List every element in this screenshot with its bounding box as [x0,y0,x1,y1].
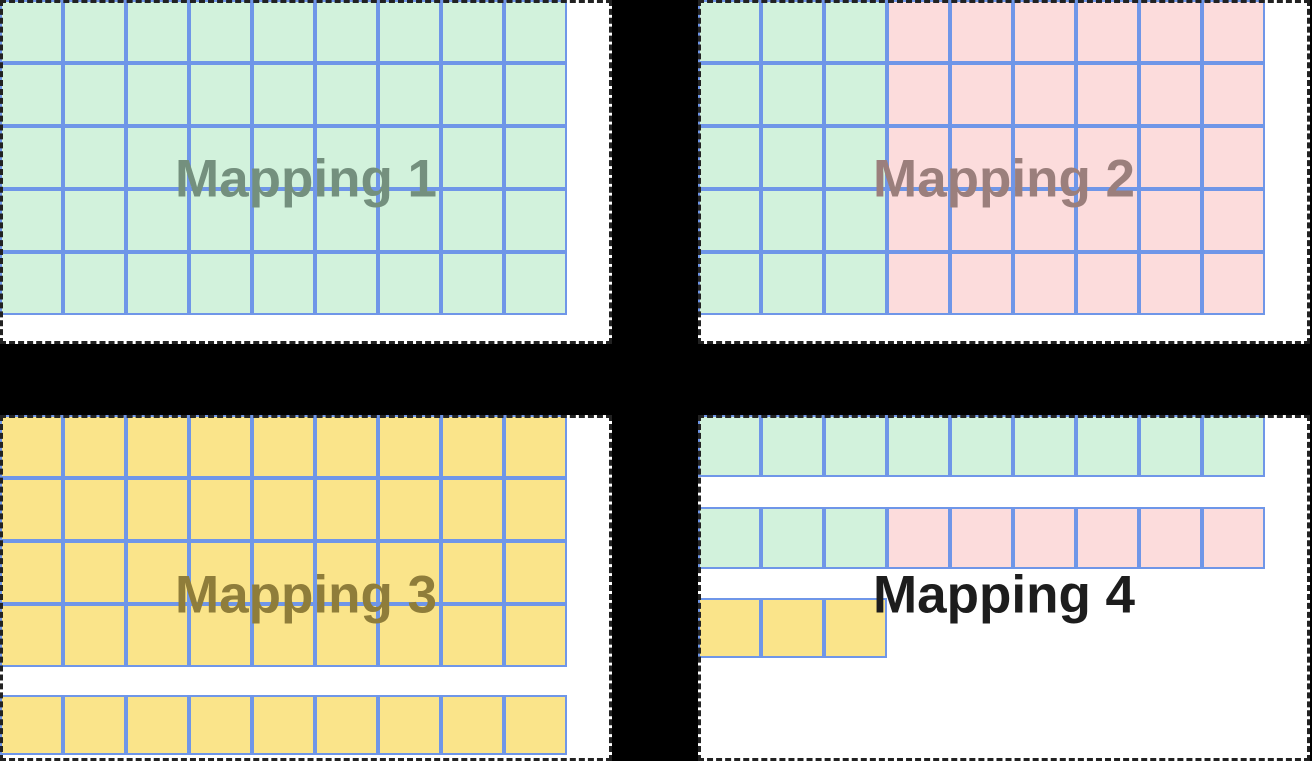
pink-cell [1076,0,1139,63]
green-cell [63,63,126,126]
pink-cell [950,0,1013,63]
pink-cell [1076,189,1139,252]
yellow-cell [315,604,378,667]
cell-row [0,604,567,667]
yellow-cell [504,478,567,541]
green-cell [315,189,378,252]
yellow-cell [504,541,567,604]
green-cell [441,0,504,63]
green-cell [698,126,761,189]
mapping-2-grid [698,0,1265,315]
green-cell [887,415,950,477]
mapping-4-grid [698,415,1265,658]
mappings-diagram: Mapping 1 Mapping 2 Mapping 3 Mapping 4 [0,0,1312,761]
pink-cell [1013,252,1076,315]
green-cell [824,415,887,477]
green-cell [441,126,504,189]
pink-cell [1076,252,1139,315]
pink-cell [1013,189,1076,252]
yellow-cell [441,695,504,755]
pink-cell [1076,63,1139,126]
pink-cell [1202,252,1265,315]
cell-row [698,598,1265,658]
yellow-cell [0,541,63,604]
green-cell [63,252,126,315]
green-cell [189,126,252,189]
pink-cell [1076,126,1139,189]
pink-cell [1202,0,1265,63]
cell-row [698,63,1265,126]
green-cell [824,63,887,126]
mapping-2-panel: Mapping 2 [698,0,1310,344]
cell-row [698,189,1265,252]
green-cell [126,63,189,126]
pink-cell [1139,189,1202,252]
cell-row [0,126,567,189]
yellow-cell [0,478,63,541]
yellow-cell [698,598,761,658]
yellow-cell [189,604,252,667]
green-cell [63,189,126,252]
pink-cell [1013,63,1076,126]
green-cell [441,189,504,252]
pink-cell [950,507,1013,569]
yellow-cell [441,541,504,604]
yellow-cell [126,604,189,667]
pink-cell [1202,126,1265,189]
cell-row-group [0,0,567,315]
green-cell [1076,415,1139,477]
cell-row-group [0,695,567,755]
yellow-cell [63,695,126,755]
green-cell [0,0,63,63]
yellow-cell [252,604,315,667]
cell-row [0,63,567,126]
green-cell [252,0,315,63]
yellow-cell [189,541,252,604]
mapping-3-grid [0,415,567,755]
green-cell [504,252,567,315]
green-cell [315,252,378,315]
yellow-cell [504,695,567,755]
green-cell [824,252,887,315]
green-cell [315,63,378,126]
pink-cell [1076,507,1139,569]
green-cell [63,0,126,63]
pink-cell [950,126,1013,189]
green-cell [126,126,189,189]
green-cell [761,252,824,315]
green-cell [315,126,378,189]
pink-cell [887,507,950,569]
green-cell [698,63,761,126]
green-cell [504,189,567,252]
mapping-1-panel: Mapping 1 [0,0,612,344]
yellow-cell [126,478,189,541]
green-cell [126,0,189,63]
green-cell [378,63,441,126]
green-cell [824,0,887,63]
green-cell [761,507,824,569]
green-cell [441,252,504,315]
cell-row-group [698,0,1265,315]
yellow-cell [315,541,378,604]
pink-cell [1013,126,1076,189]
mapping-3-panel: Mapping 3 [0,415,612,761]
yellow-cell [378,415,441,478]
green-cell [189,63,252,126]
yellow-cell [252,478,315,541]
green-cell [504,126,567,189]
yellow-cell [824,598,887,658]
yellow-cell [63,541,126,604]
green-cell [698,189,761,252]
pink-cell [1139,0,1202,63]
yellow-cell [378,478,441,541]
pink-cell [1202,63,1265,126]
green-cell [698,415,761,477]
yellow-cell [441,604,504,667]
green-cell [1139,415,1202,477]
cell-row [0,189,567,252]
green-cell [698,0,761,63]
cell-row [698,415,1265,477]
yellow-cell [0,695,63,755]
yellow-cell [378,604,441,667]
green-cell [0,252,63,315]
pink-cell [1202,189,1265,252]
yellow-cell [252,415,315,478]
green-cell [824,126,887,189]
green-cell [698,507,761,569]
pink-cell [950,252,1013,315]
yellow-cell [126,541,189,604]
green-cell [252,252,315,315]
cell-row-group [698,598,1265,658]
green-cell [504,0,567,63]
cell-row [0,541,567,604]
green-cell [761,126,824,189]
green-cell [378,0,441,63]
green-cell [1013,415,1076,477]
pink-cell [887,189,950,252]
green-cell [0,126,63,189]
green-cell [0,189,63,252]
green-cell [761,189,824,252]
green-cell [378,252,441,315]
yellow-cell [126,415,189,478]
green-cell [761,415,824,477]
green-cell [761,0,824,63]
cell-row [0,415,567,478]
yellow-cell [189,415,252,478]
cell-row-group [698,507,1265,569]
green-cell [824,189,887,252]
yellow-cell [441,478,504,541]
pink-cell [887,126,950,189]
pink-cell [1139,63,1202,126]
green-cell [252,63,315,126]
pink-cell [950,63,1013,126]
yellow-cell [315,478,378,541]
green-cell [0,63,63,126]
yellow-cell [63,604,126,667]
yellow-cell [378,695,441,755]
yellow-cell [126,695,189,755]
green-cell [950,415,1013,477]
yellow-cell [252,695,315,755]
yellow-cell [0,415,63,478]
pink-cell [1202,507,1265,569]
yellow-cell [504,604,567,667]
cell-row [0,0,567,63]
pink-cell [887,0,950,63]
cell-row [0,695,567,755]
yellow-cell [189,695,252,755]
pink-cell [1139,252,1202,315]
cell-row [0,478,567,541]
cell-row [698,252,1265,315]
pink-cell [887,252,950,315]
yellow-cell [252,541,315,604]
green-cell [315,0,378,63]
yellow-cell [441,415,504,478]
yellow-cell [315,415,378,478]
yellow-cell [189,478,252,541]
yellow-cell [504,415,567,478]
cell-row-group [698,415,1265,477]
green-cell [252,189,315,252]
pink-cell [950,189,1013,252]
green-cell [761,63,824,126]
yellow-cell [378,541,441,604]
green-cell [189,189,252,252]
mapping-1-grid [0,0,567,315]
cell-row [698,0,1265,63]
cell-row [698,507,1265,569]
pink-cell [1013,507,1076,569]
cell-row [0,252,567,315]
cell-row-group [0,415,567,667]
green-cell [504,63,567,126]
green-cell [63,126,126,189]
pink-cell [1013,0,1076,63]
green-cell [824,507,887,569]
green-cell [441,63,504,126]
yellow-cell [63,478,126,541]
green-cell [252,126,315,189]
green-cell [189,252,252,315]
pink-cell [1139,507,1202,569]
yellow-cell [0,604,63,667]
cell-row [698,126,1265,189]
green-cell [1202,415,1265,477]
yellow-cell [761,598,824,658]
green-cell [126,189,189,252]
pink-cell [887,63,950,126]
green-cell [126,252,189,315]
green-cell [378,189,441,252]
yellow-cell [315,695,378,755]
yellow-cell [63,415,126,478]
mapping-4-panel: Mapping 4 [698,415,1310,761]
green-cell [698,252,761,315]
green-cell [378,126,441,189]
pink-cell [1139,126,1202,189]
green-cell [189,0,252,63]
